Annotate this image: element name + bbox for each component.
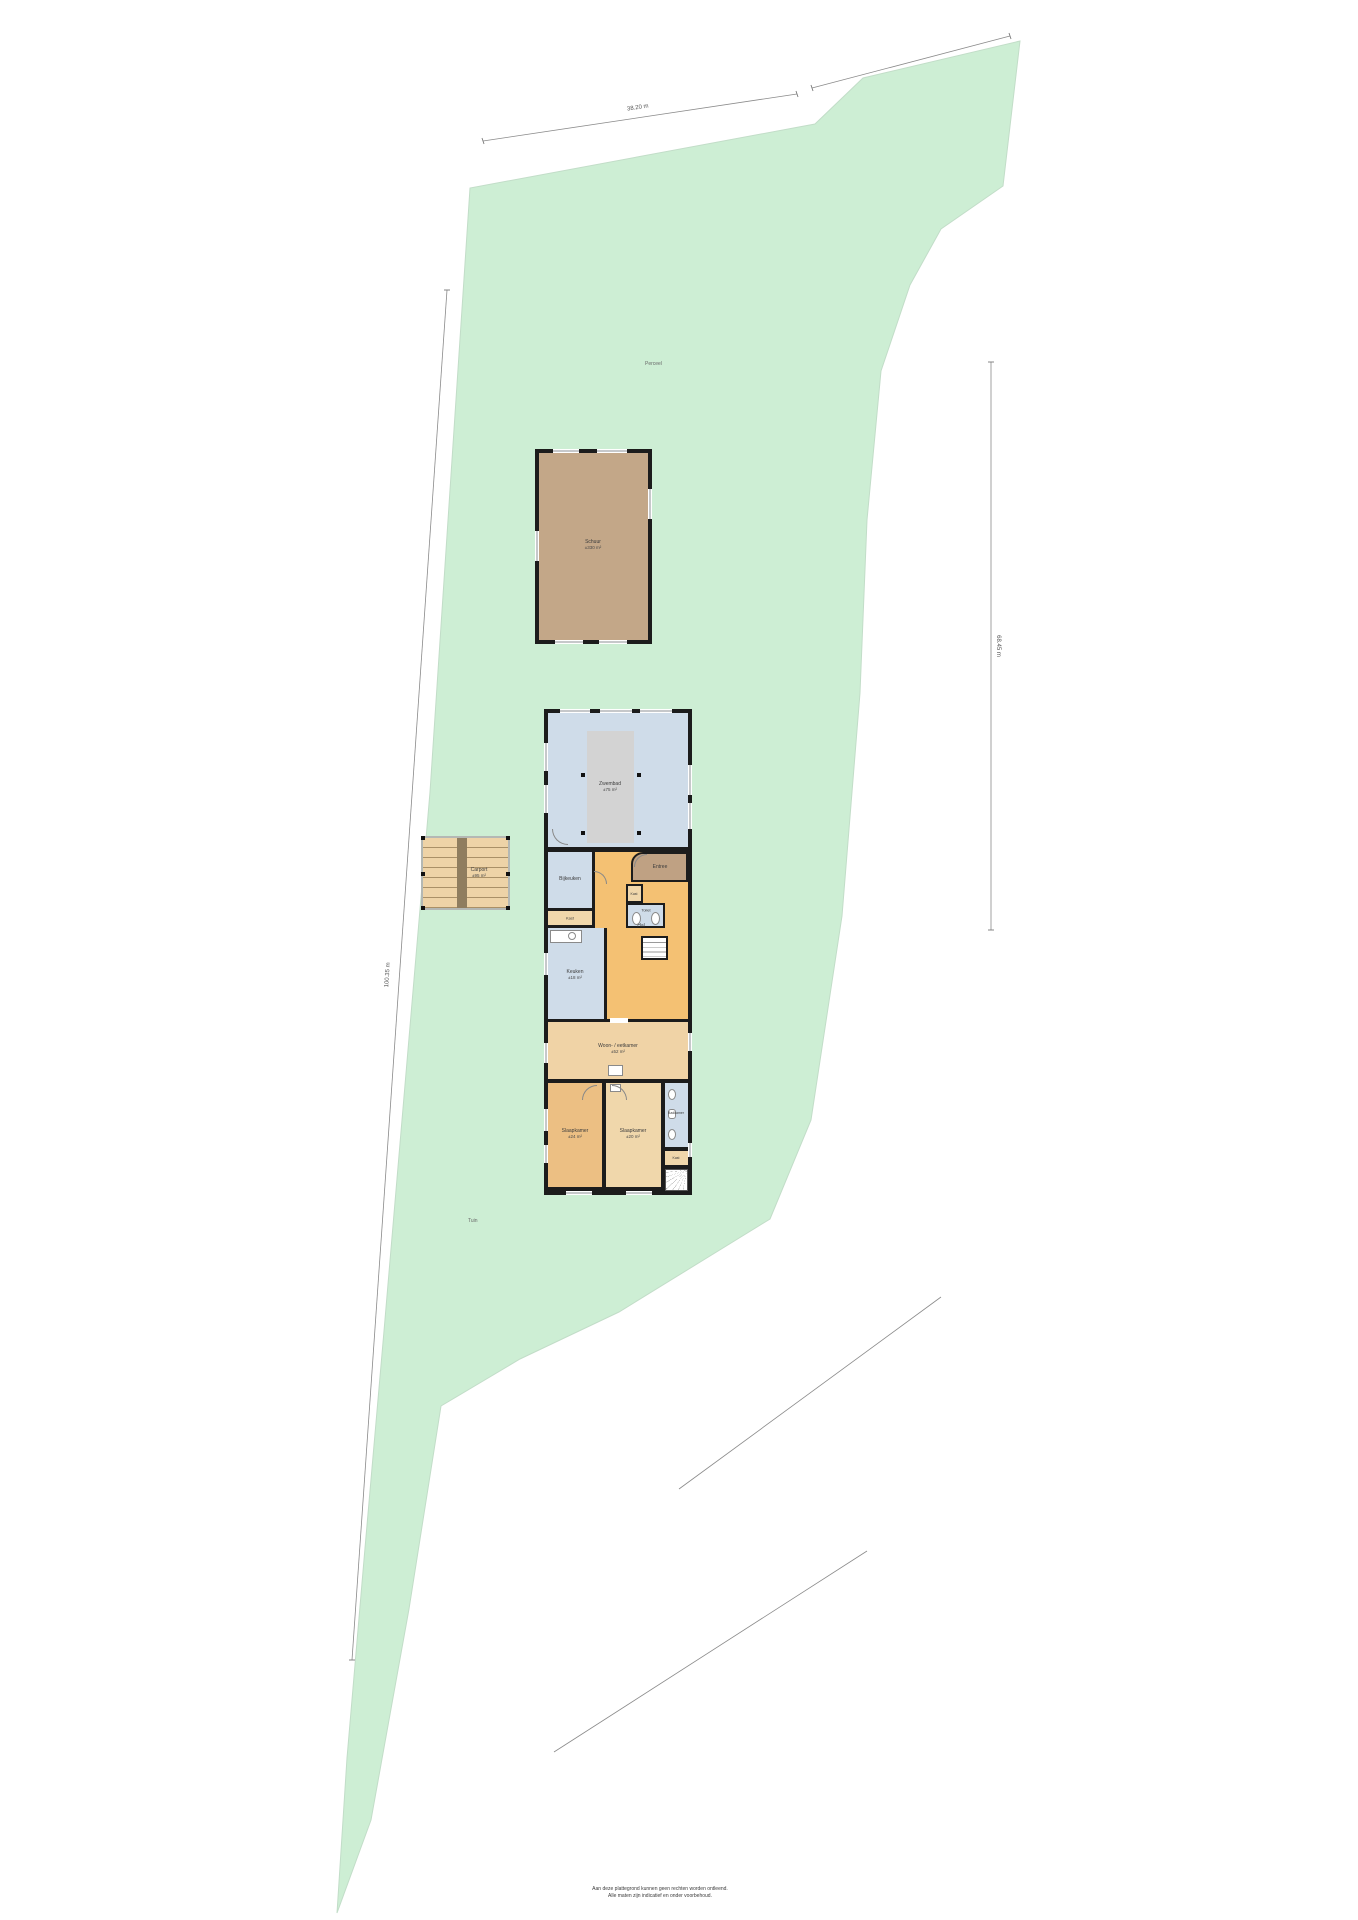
room-size: ±75 m² <box>599 787 621 793</box>
stairs-hal <box>641 936 668 960</box>
room-size: ±18 m² <box>567 975 584 981</box>
barn-window <box>553 449 579 453</box>
room-name: Badkamer <box>668 1111 684 1115</box>
house: Zwembad ±75 m² Hal Entree Bijkeuken Kast… <box>544 709 692 1195</box>
room-toilet-label: Toilet <box>641 908 650 913</box>
room-woonkamer-label: Woon- / eetkamer ±52 m² <box>598 1043 638 1055</box>
house-window <box>544 1145 548 1163</box>
dimension-line-lower-2 <box>554 1551 867 1752</box>
carport-size: ±95 m² <box>471 873 488 879</box>
carport-post <box>506 906 510 910</box>
dimension-line-lower-1 <box>679 1297 941 1489</box>
house-window <box>626 1191 652 1195</box>
room-size: ±24 m² <box>562 1134 589 1140</box>
room-slaapkamer-links-label: Slaapkamer ±24 m² <box>562 1128 589 1140</box>
room-bijkeuken-label: Bijkeuken <box>559 876 581 882</box>
barn: Schuur ±330 m² <box>535 449 652 644</box>
barn-window <box>648 489 652 519</box>
kitchen-counter <box>550 930 582 943</box>
house-window <box>544 1109 548 1131</box>
room-name: Zwembad <box>599 781 621 787</box>
room-name: Kast <box>672 1156 679 1160</box>
room-size: ±20 m² <box>620 1134 647 1140</box>
dimension-label-left: 100.35 m <box>384 962 392 987</box>
room-slaapkamer-midden-label: Slaapkamer ±20 m² <box>620 1128 647 1140</box>
carport-label: Carport ±95 m² <box>471 867 488 879</box>
plot-label-top: Perceel <box>645 361 662 367</box>
room-keuken-label: Keuken ±18 m² <box>567 969 584 981</box>
room-entree-label: Entree <box>653 864 668 870</box>
house-window <box>688 1033 692 1051</box>
barn-window <box>555 640 583 644</box>
barn-name: Schuur <box>585 539 601 545</box>
room-badkamer-label: Badkamer <box>668 1111 684 1115</box>
house-window <box>600 709 632 713</box>
structure-post <box>581 831 585 835</box>
room-name: Bijkeuken <box>559 876 581 882</box>
house-window <box>544 785 548 813</box>
stairs-fan <box>665 1169 688 1191</box>
house-window <box>640 709 672 713</box>
room-name: Toilet <box>641 908 650 913</box>
house-window <box>544 953 548 975</box>
carport-post <box>506 836 510 840</box>
carport-center-beam <box>457 838 467 908</box>
disclaimer: Aan deze plattegrond kunnen geen rechten… <box>520 1886 800 1899</box>
room-name: Kast <box>566 916 574 921</box>
structure-post <box>637 831 641 835</box>
barn-label: Schuur ±330 m² <box>585 539 601 551</box>
dimension-line-top <box>483 94 797 141</box>
room-zwembad-label: Zwembad ±75 m² <box>599 781 621 793</box>
room-kast-bijkeuken-label: Kast <box>566 916 574 921</box>
house-window <box>688 803 692 829</box>
house-window <box>544 743 548 771</box>
house-window <box>688 765 692 795</box>
room-name: Slaapkamer <box>562 1128 589 1134</box>
dimension-label-top: 38.20 m <box>627 103 649 112</box>
disclaimer-line-2: Alle maten zijn indicatief en onder voor… <box>520 1893 800 1900</box>
carport-name: Carport <box>471 867 488 873</box>
room-kast-overloop-label: Kast <box>672 1156 679 1160</box>
plot-label-bottom: Tuin <box>468 1218 478 1224</box>
kitchen-sink <box>568 932 576 940</box>
barn-window <box>599 640 627 644</box>
room-name: Kast <box>630 892 637 896</box>
room-name: Slaapkamer <box>620 1128 647 1134</box>
house-window <box>688 1143 692 1157</box>
meter-box <box>608 1065 623 1076</box>
room-zwembad <box>548 713 688 847</box>
house-window <box>544 1043 548 1063</box>
toilet-fixture <box>651 912 660 925</box>
carport: Carport ±95 m² <box>421 836 510 910</box>
dimension-label-right: 68.45 m <box>995 635 1001 657</box>
barn-size: ±330 m² <box>585 545 601 551</box>
house-window <box>566 1191 592 1195</box>
bath-toilet <box>668 1129 676 1140</box>
door-opening <box>610 1018 628 1023</box>
carport-post <box>421 836 425 840</box>
barn-window <box>535 531 539 561</box>
bath-toilet <box>668 1089 676 1100</box>
carport-post <box>506 872 510 876</box>
room-name: Woon- / eetkamer <box>598 1043 638 1049</box>
toilet-fixture <box>632 912 641 925</box>
carport-post <box>421 906 425 910</box>
room-size: ±52 m² <box>598 1049 638 1055</box>
room-kast-hal-label: Kast <box>630 892 637 896</box>
room-name: Entree <box>653 864 668 870</box>
carport-post <box>421 872 425 876</box>
structure-post <box>581 773 585 777</box>
site-plan-canvas: 38.20 m 68.45 m 100.35 m Perceel Tuin Sc… <box>0 0 1358 1920</box>
structure-post <box>637 773 641 777</box>
barn-window <box>597 449 627 453</box>
room-name: Keuken <box>567 969 584 975</box>
house-window <box>560 709 590 713</box>
